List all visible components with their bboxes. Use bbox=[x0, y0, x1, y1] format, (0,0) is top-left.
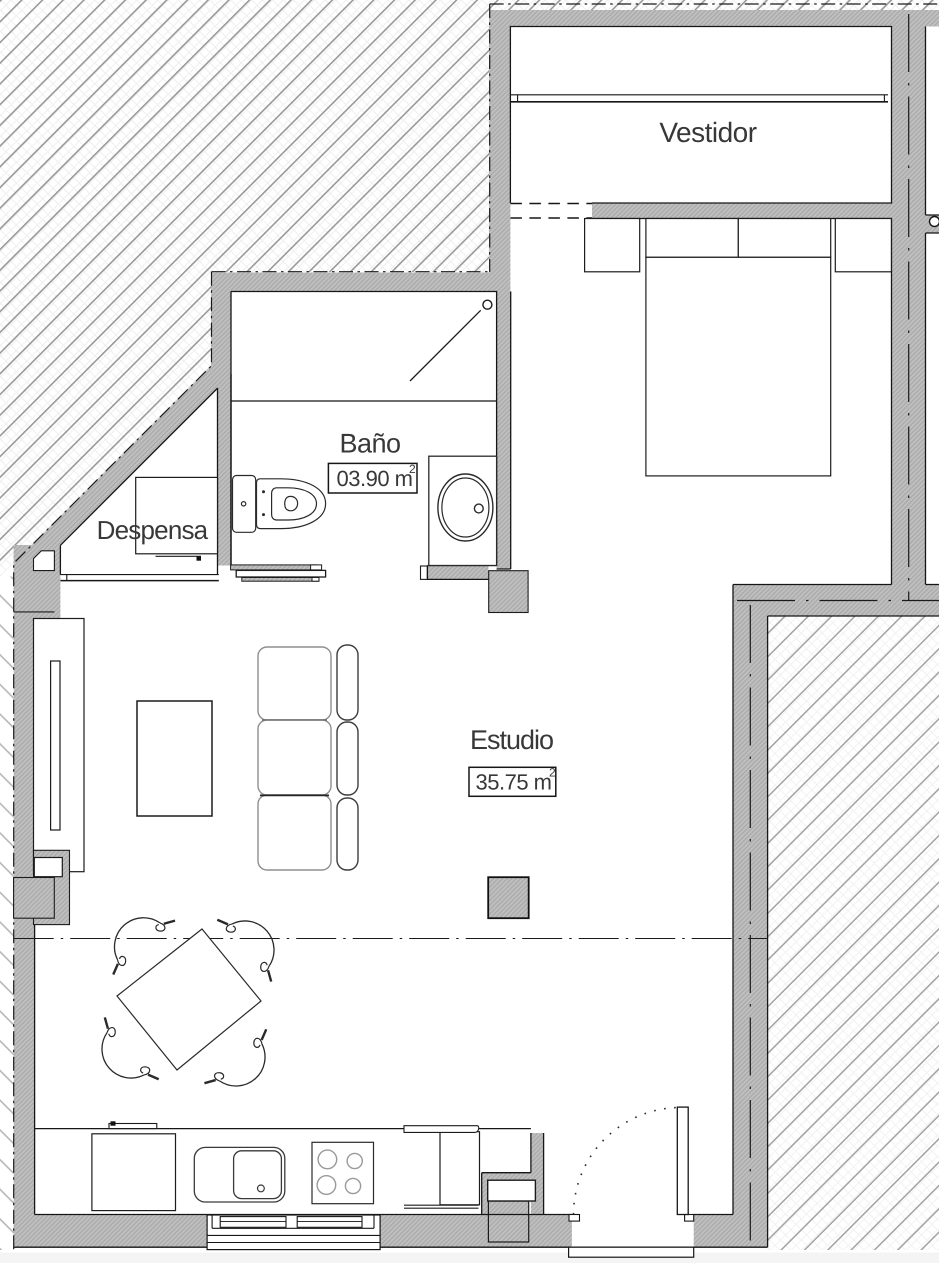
svg-text:Baño: Baño bbox=[339, 428, 400, 458]
svg-text:Vestidor: Vestidor bbox=[659, 117, 756, 148]
svg-text:03.90 m: 03.90 m bbox=[337, 466, 413, 491]
svg-text:Estudio: Estudio bbox=[470, 725, 553, 755]
svg-text:2: 2 bbox=[549, 765, 556, 779]
svg-text:2: 2 bbox=[409, 462, 416, 476]
svg-text:35.75 m: 35.75 m bbox=[476, 769, 552, 794]
svg-text:Despensa: Despensa bbox=[97, 515, 209, 545]
